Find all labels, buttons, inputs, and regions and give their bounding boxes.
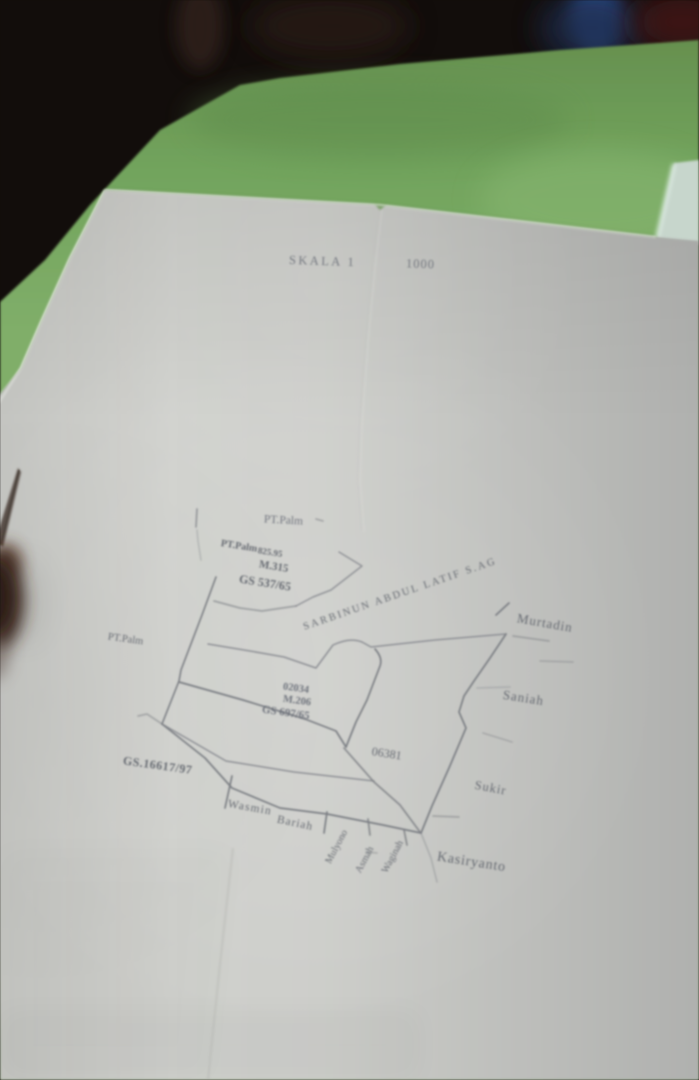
svg-text:PT.Palm: PT.Palm — [264, 514, 304, 528]
svg-text:1000: 1000 — [406, 256, 435, 271]
svg-text:SKALA 1: SKALA 1 — [289, 253, 357, 269]
